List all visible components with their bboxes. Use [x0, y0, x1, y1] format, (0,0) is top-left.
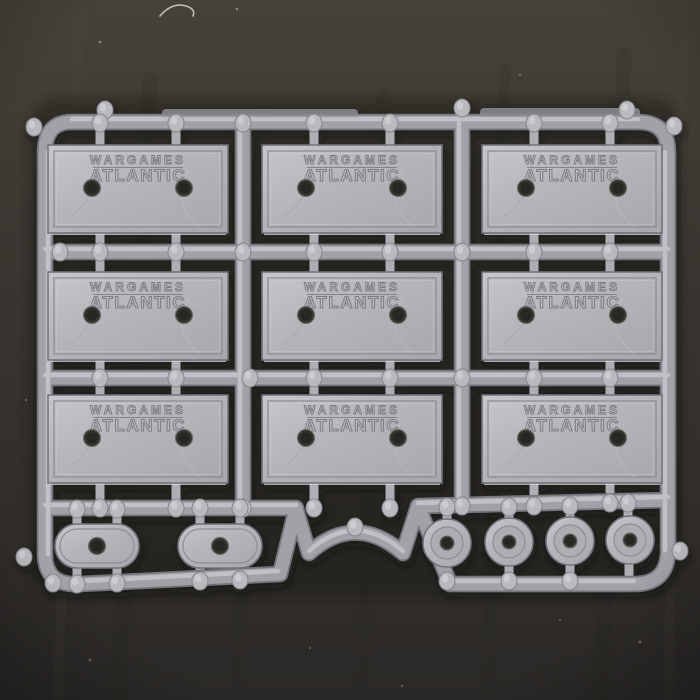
photo-stage: WARGAMES ATLANTIC WARGAMES ATLANTIC WARG… [0, 0, 700, 700]
vignette-overlay [0, 0, 700, 700]
sprue-photo: WARGAMES ATLANTIC WARGAMES ATLANTIC WARG… [0, 0, 700, 700]
